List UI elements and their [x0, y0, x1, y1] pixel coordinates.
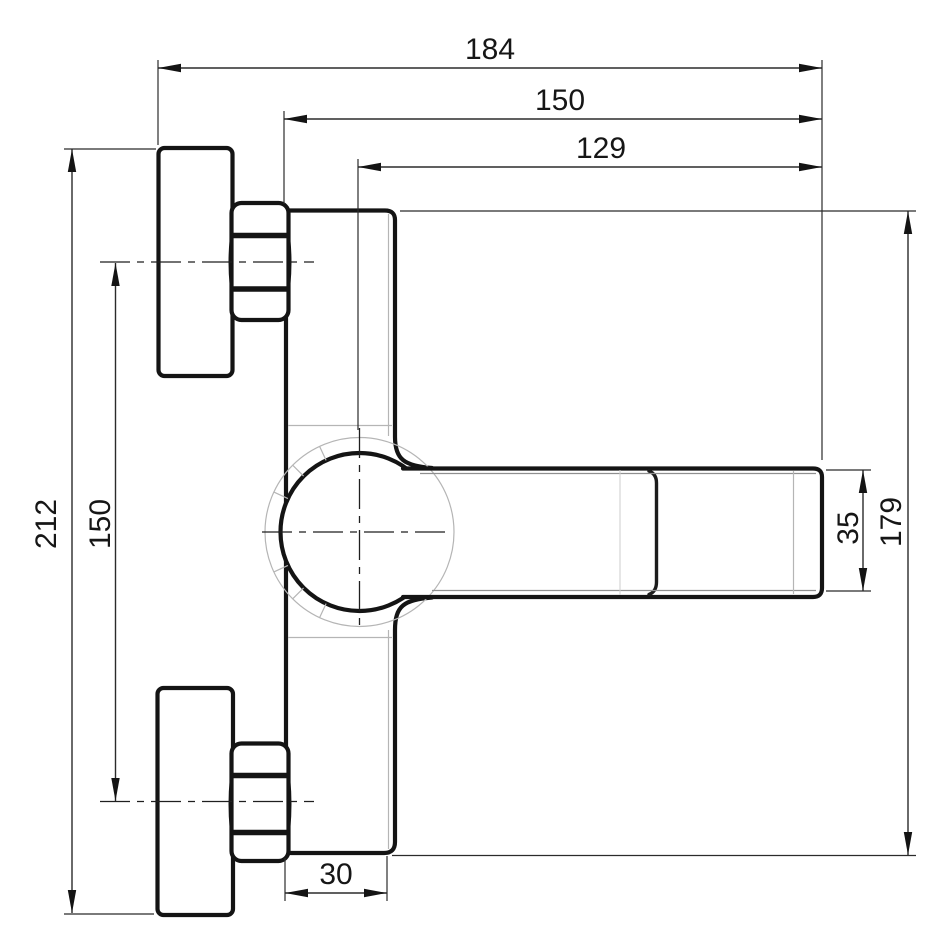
- dim-body-height: 179: [875, 211, 912, 855]
- dim-center-to-spout: 129: [358, 132, 822, 171]
- dim-inlet-spacing: 150: [84, 263, 120, 801]
- dim-label-overall-width: 184: [465, 33, 515, 66]
- dim-overall-height: 212: [30, 149, 76, 913]
- dim-label-body-height: 179: [875, 497, 908, 547]
- technical-drawing-canvas: 184 150 129 212 150 35 179: [0, 0, 946, 945]
- dim-spout-height: 35: [832, 470, 867, 591]
- dim-label-face-to-spout: 150: [535, 84, 585, 117]
- spout-fill: [402, 468, 821, 598]
- dim-overall-width: 184: [158, 33, 822, 72]
- dim-base-depth: 30: [285, 858, 387, 897]
- dim-face-to-spout: 150: [284, 84, 822, 123]
- hex-nut-bottom: [230, 744, 290, 862]
- dim-label-spout-height: 35: [832, 511, 865, 544]
- technical-drawing-page: 184 150 129 212 150 35 179: [0, 0, 946, 945]
- dim-label-overall-height: 212: [30, 499, 63, 549]
- dim-label-inlet-spacing: 150: [84, 499, 117, 549]
- dim-label-center-to-spout: 129: [576, 132, 626, 165]
- dim-label-base-depth: 30: [319, 858, 352, 891]
